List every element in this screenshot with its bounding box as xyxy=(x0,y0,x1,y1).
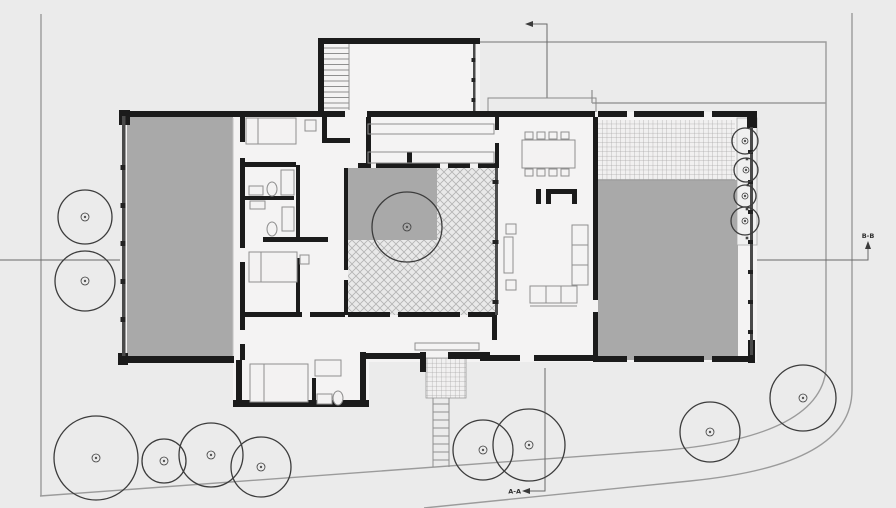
east-terrace-fill xyxy=(598,180,738,360)
bath2-toilet xyxy=(267,222,277,236)
bath1-sink xyxy=(249,186,263,195)
bed-north xyxy=(246,118,296,144)
entry-porch xyxy=(426,358,466,398)
planter-dot xyxy=(746,237,749,240)
dining-table-set xyxy=(522,132,575,176)
bed-south xyxy=(250,364,308,402)
dining-table xyxy=(522,140,575,168)
nightstand xyxy=(305,120,316,131)
section-label-bb: B-B xyxy=(862,232,875,240)
bed-middle xyxy=(249,252,297,282)
floor-plan-canvas: B-B A-A xyxy=(0,0,896,508)
tiled-terrace xyxy=(598,120,735,180)
planter-dot xyxy=(746,208,749,211)
west-room-fill xyxy=(127,117,233,356)
fireplace xyxy=(536,189,541,204)
courtyard-planter-fill xyxy=(348,168,437,240)
nightstand2 xyxy=(300,255,309,264)
bath3-shower xyxy=(315,360,341,376)
bath3-sink xyxy=(317,394,332,404)
bath2-shower xyxy=(282,207,294,231)
bath1-shower xyxy=(281,170,294,195)
bath2-sink xyxy=(250,201,265,209)
section-label-aa: A-A xyxy=(508,488,521,496)
bath1-toilet xyxy=(267,182,277,196)
stair-block-north-wall xyxy=(318,38,480,44)
bath3-toilet xyxy=(333,391,343,405)
courtyard xyxy=(348,168,497,315)
